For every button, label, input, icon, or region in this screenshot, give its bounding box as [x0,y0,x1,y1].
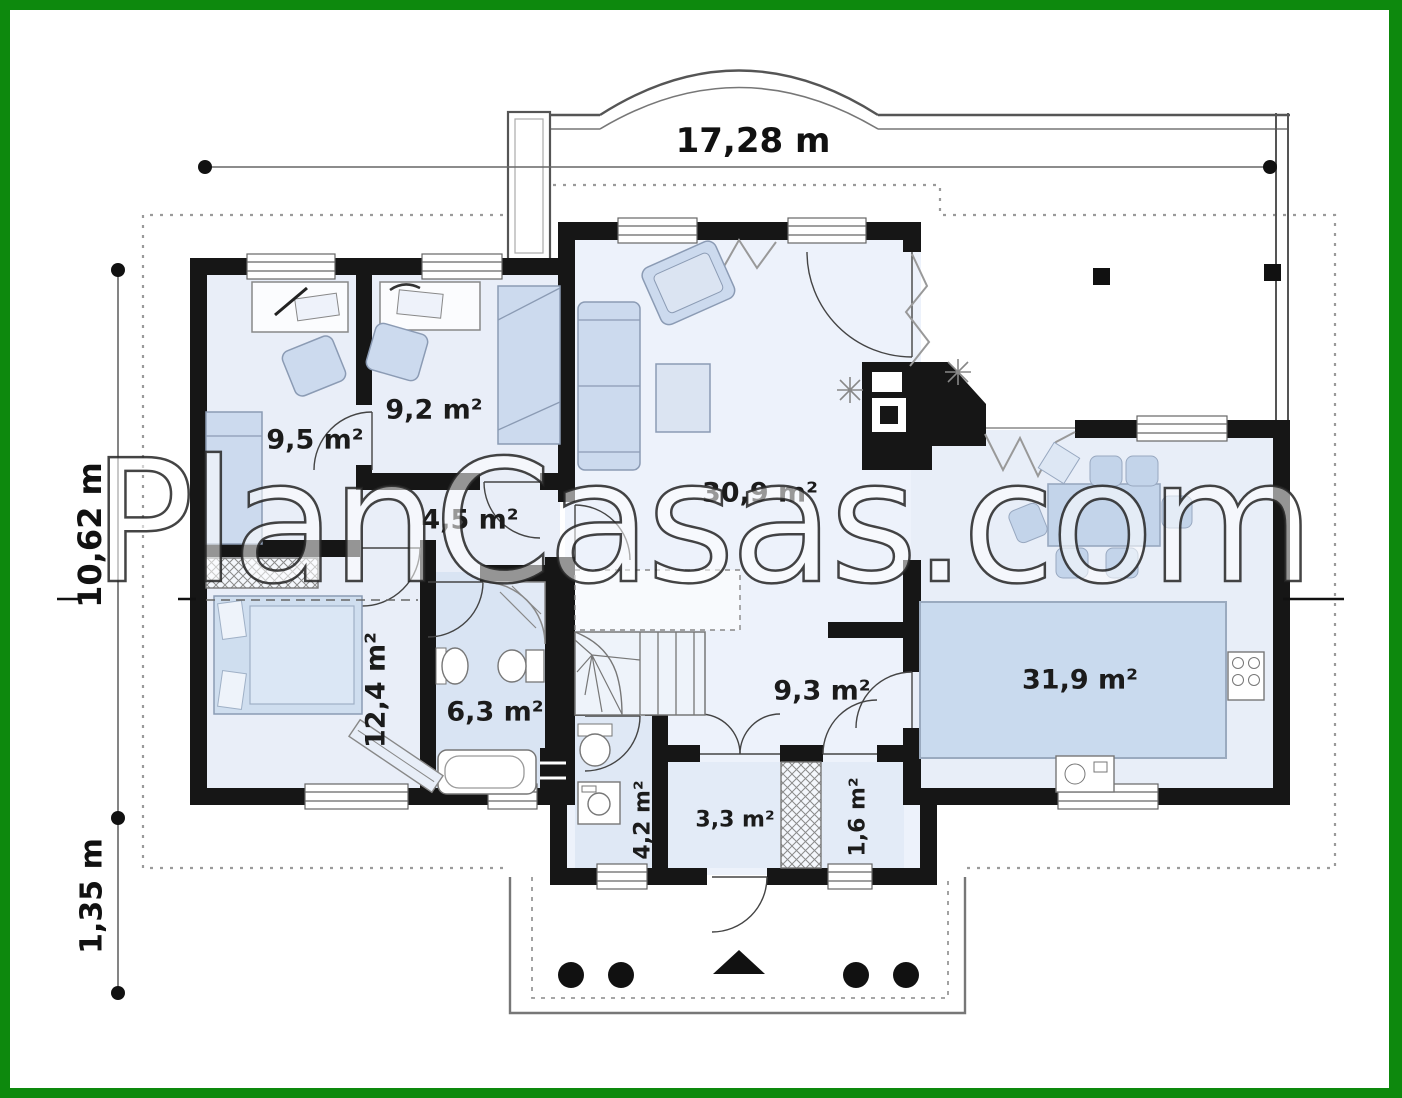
chimney [508,112,550,260]
entrance-porch [510,877,965,1013]
kitchen-island [920,602,1226,758]
porch-column [893,962,919,988]
window [305,784,408,809]
fireplace-detail [872,372,906,432]
wardrobe [781,762,821,868]
chair [1056,548,1088,578]
window [828,864,872,889]
terrace-column [1093,268,1110,285]
chair [1162,496,1192,528]
dining-table [1048,484,1160,546]
window [247,254,335,279]
kitchen-sink [1056,756,1114,792]
coffee-table [656,364,710,432]
stove [1228,652,1264,700]
sofa [578,302,640,470]
bathroom-sink [436,648,468,684]
window [1137,416,1227,441]
chair [1090,456,1122,486]
double-bed [214,596,362,714]
porch-column [558,962,584,988]
radiator [540,748,566,794]
chair [1106,548,1138,578]
window [788,218,866,243]
bed [498,286,560,444]
floor-plan-drawing [0,0,1402,1098]
porch-column [843,962,869,988]
porch-column [608,962,634,988]
window [618,218,697,243]
chair [1126,456,1158,486]
entrance-arrow [713,950,765,974]
wc-toilet [578,724,612,766]
floor-plan-page: 17,28 m 10,62 m 1,35 m 9,5 m² 9,2 m² 4,5… [0,0,1402,1098]
bathtub [438,750,536,794]
plant [837,377,863,403]
front-door [712,877,767,932]
wardrobe [206,558,318,588]
toilet [498,650,544,682]
bed [206,412,262,544]
window [422,254,502,279]
terrace-column [1264,264,1281,281]
window [597,864,647,889]
washing-machine [578,782,620,824]
plant [945,359,971,385]
